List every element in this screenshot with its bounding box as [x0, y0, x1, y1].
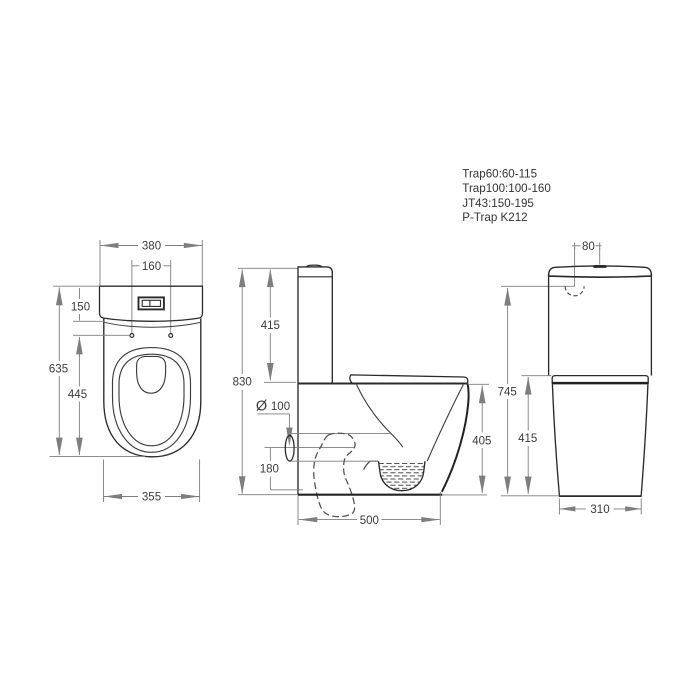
svg-text:Ø: Ø — [256, 398, 267, 414]
svg-text:380: 380 — [142, 241, 161, 253]
svg-text:180: 180 — [260, 464, 279, 476]
svg-text:Trap100:100-160: Trap100:100-160 — [462, 182, 551, 195]
svg-text:405: 405 — [472, 435, 491, 447]
svg-text:745: 745 — [498, 386, 517, 398]
svg-text:100: 100 — [271, 401, 290, 413]
svg-text:Trap60:60-115: Trap60:60-115 — [462, 168, 537, 181]
svg-text:445: 445 — [68, 389, 87, 401]
svg-text:150: 150 — [71, 302, 90, 314]
svg-text:635: 635 — [49, 364, 68, 376]
svg-text:500: 500 — [360, 515, 379, 527]
svg-text:310: 310 — [590, 504, 609, 516]
svg-text:P-Trap K212: P-Trap K212 — [462, 211, 527, 224]
svg-text:415: 415 — [518, 433, 537, 445]
svg-text:355: 355 — [142, 492, 161, 504]
svg-text:80: 80 — [582, 241, 595, 253]
svg-text:415: 415 — [261, 320, 280, 332]
svg-text:160: 160 — [142, 261, 161, 273]
svg-text:JT43:150-195: JT43:150-195 — [462, 197, 534, 210]
svg-text:830: 830 — [233, 377, 252, 389]
